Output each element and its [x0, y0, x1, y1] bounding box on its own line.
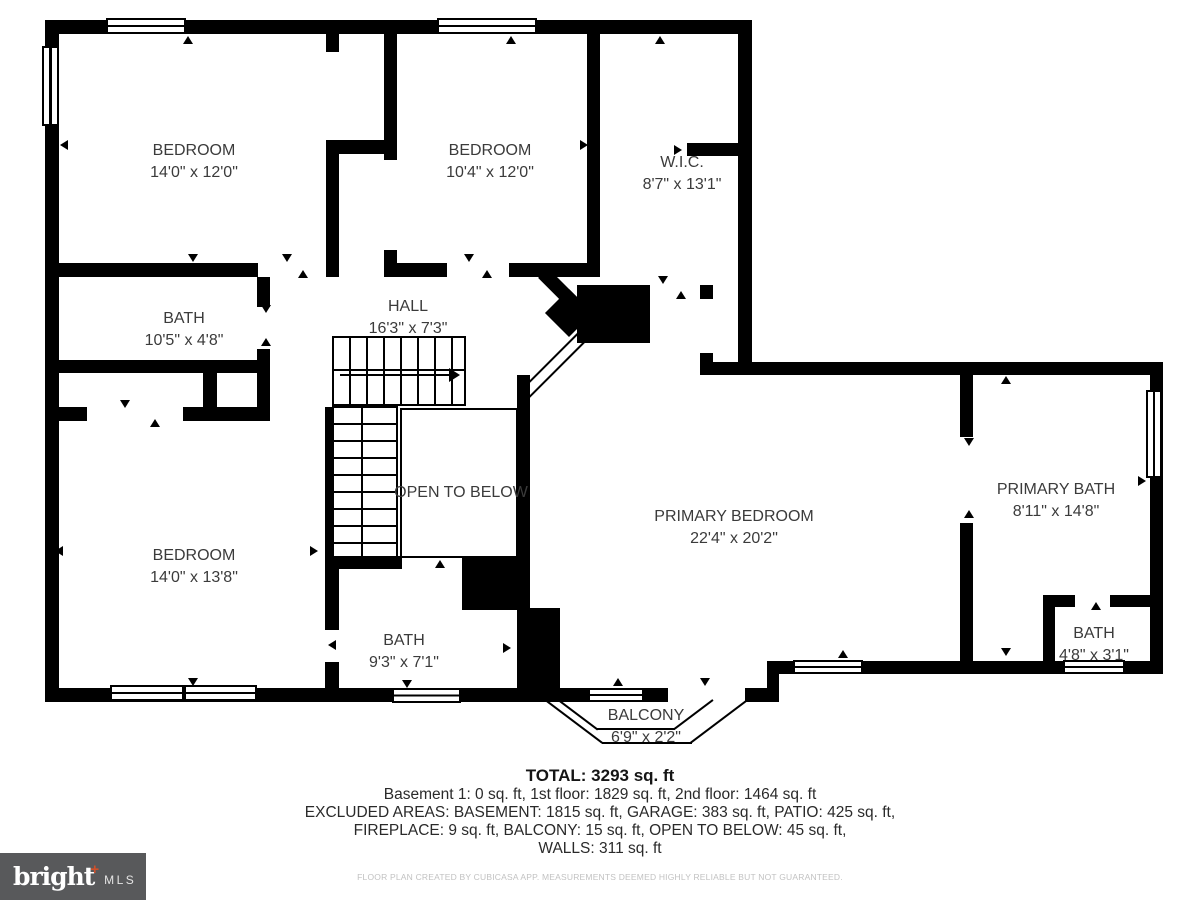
room-name: BEDROOM [446, 140, 534, 162]
room-label-hall: HALL 16'3" x 7'3" [369, 296, 448, 340]
direction-marker-icon [506, 36, 516, 44]
direction-marker-icon [655, 36, 665, 44]
direction-marker-icon [188, 254, 198, 262]
floor-plan: BEDROOM 14'0" x 12'0" BEDROOM 10'4" x 12… [0, 0, 1200, 900]
room-name: BALCONY [608, 705, 684, 727]
direction-marker-icon [261, 305, 271, 313]
disclaimer-text: FLOOR PLAN CREATED BY CUBICASA APP. MEAS… [0, 872, 1200, 882]
direction-marker-icon [183, 36, 193, 44]
balcony-railing [546, 700, 603, 744]
room-name: BATH [369, 630, 439, 652]
room-dims: 10'5" x 4'8" [145, 330, 224, 352]
wall [257, 277, 270, 307]
room-name: PRIMARY BATH [997, 479, 1115, 501]
direction-marker-icon [964, 510, 974, 518]
direction-marker-icon [1001, 376, 1011, 384]
shower-block [462, 556, 520, 610]
bright-mls-logo: bright + MLS [0, 853, 146, 900]
wall [217, 360, 258, 373]
excluded-areas-3: WALLS: 311 sq. ft [0, 840, 1200, 858]
wall [960, 523, 973, 663]
window [106, 18, 186, 34]
room-label-wic: W.I.C. 8'7" x 13'1" [643, 152, 722, 196]
staircase-center-line [361, 406, 363, 558]
window [437, 18, 537, 34]
room-dims: 22'4" x 20'2" [654, 528, 813, 550]
window [110, 685, 184, 701]
room-name: HALL [369, 296, 448, 318]
window [793, 660, 863, 674]
area-summary: TOTAL: 3293 sq. ft Basement 1: 0 sq. ft,… [0, 766, 1200, 858]
room-label-bath-bottom-right: BATH 4'8" x 3'1" [1059, 623, 1129, 667]
room-name: W.I.C. [643, 152, 722, 174]
room-dims: 9'3" x 7'1" [369, 652, 439, 674]
direction-marker-icon [328, 640, 336, 650]
room-label-bath-left: BATH 10'5" x 4'8" [145, 308, 224, 352]
logo-brand-text: bright [13, 864, 94, 889]
window [588, 688, 644, 702]
direction-marker-icon [503, 643, 511, 653]
wall [45, 407, 87, 421]
wall [738, 20, 752, 375]
room-name: BATH [1059, 623, 1129, 645]
wall [326, 154, 339, 277]
room-dims: 14'0" x 12'0" [150, 162, 238, 184]
direction-marker-icon [1091, 602, 1101, 610]
direction-marker-icon [482, 270, 492, 278]
room-name: BEDROOM [150, 140, 238, 162]
room-dims: 14'0" x 13'8" [150, 567, 238, 589]
room-name: BEDROOM [150, 545, 238, 567]
wall [700, 353, 713, 375]
direction-marker-icon [55, 546, 63, 556]
window [184, 685, 257, 701]
room-label-bath-center: BATH 9'3" x 7'1" [369, 630, 439, 674]
wall [384, 20, 397, 160]
direction-marker-icon [282, 254, 292, 262]
room-label-bedroom-top-middle: BEDROOM 10'4" x 12'0" [446, 140, 534, 184]
excluded-areas-2: FIREPLACE: 9 sq. ft, BALCONY: 15 sq. ft,… [0, 822, 1200, 840]
direction-marker-icon [464, 254, 474, 262]
wall [397, 263, 447, 277]
staircase-divider [332, 369, 466, 371]
excluded-areas-1: EXCLUDED AREAS: BASEMENT: 1815 sq. ft, G… [0, 804, 1200, 822]
wall [700, 362, 1163, 375]
total-area: TOTAL: 3293 sq. ft [0, 766, 1200, 786]
wall [326, 20, 339, 52]
direction-marker-icon [261, 338, 271, 346]
room-label-bedroom-bottom-left: BEDROOM 14'0" x 13'8" [150, 545, 238, 589]
room-label-primary-bedroom: PRIMARY BEDROOM 22'4" x 20'2" [654, 506, 813, 550]
room-dims: 4'8" x 3'1" [1059, 645, 1129, 667]
wall [203, 360, 217, 411]
direction-marker-icon [964, 438, 974, 446]
window [1146, 390, 1162, 478]
room-dims: 8'11" x 14'8" [997, 501, 1115, 523]
wall [517, 375, 530, 558]
room-label-open-to-below: OPEN TO BELOW [394, 482, 528, 504]
direction-marker-icon [60, 140, 68, 150]
wall [644, 688, 668, 702]
room-name: BATH [145, 308, 224, 330]
direction-marker-icon [402, 680, 412, 688]
balcony-railing [690, 700, 747, 744]
direction-marker-icon [435, 560, 445, 568]
logo-suffix-text: MLS [104, 874, 136, 886]
wall-corner-block [517, 608, 560, 702]
staircase-upper-flight [332, 336, 466, 406]
wall [700, 285, 713, 299]
wall [325, 662, 339, 702]
direction-marker-icon [1138, 476, 1146, 486]
room-dims: 6'9" x 2'2" [608, 727, 684, 749]
direction-marker-icon [613, 678, 623, 686]
wall [183, 407, 270, 421]
direction-marker-icon [310, 546, 318, 556]
stair-direction-line [340, 374, 450, 376]
wall [1043, 595, 1075, 607]
direction-marker-icon [188, 678, 198, 686]
direction-marker-icon [120, 400, 130, 408]
window [42, 46, 59, 126]
window [392, 688, 461, 703]
direction-marker-icon [580, 140, 588, 150]
wall [45, 263, 258, 277]
direction-marker-icon [1001, 648, 1011, 656]
staircase-lower-flight [332, 406, 398, 558]
wall [767, 661, 779, 702]
room-label-primary-bath: PRIMARY BATH 8'11" x 14'8" [997, 479, 1115, 523]
room-name: PRIMARY BEDROOM [654, 506, 813, 528]
wall [587, 20, 600, 277]
logo-plus-icon: + [90, 862, 99, 877]
room-dims: 8'7" x 13'1" [643, 174, 722, 196]
direction-marker-icon [150, 419, 160, 427]
direction-marker-icon [838, 650, 848, 658]
wall [1110, 595, 1150, 607]
direction-marker-icon [298, 270, 308, 278]
room-name: OPEN TO BELOW [394, 482, 528, 504]
room-label-bedroom-top-left: BEDROOM 14'0" x 12'0" [150, 140, 238, 184]
wall [384, 250, 397, 277]
direction-marker-icon [700, 678, 710, 686]
direction-marker-icon [676, 291, 686, 299]
wall [960, 375, 973, 437]
room-dims: 10'4" x 12'0" [446, 162, 534, 184]
room-dims: 16'3" x 7'3" [369, 318, 448, 340]
stair-direction-arrow-icon [449, 368, 460, 382]
direction-marker-icon [658, 276, 668, 284]
wall [45, 360, 205, 373]
wall [326, 140, 397, 154]
floor-areas: Basement 1: 0 sq. ft, 1st floor: 1829 sq… [0, 786, 1200, 804]
room-label-balcony: BALCONY 6'9" x 2'2" [608, 705, 684, 749]
